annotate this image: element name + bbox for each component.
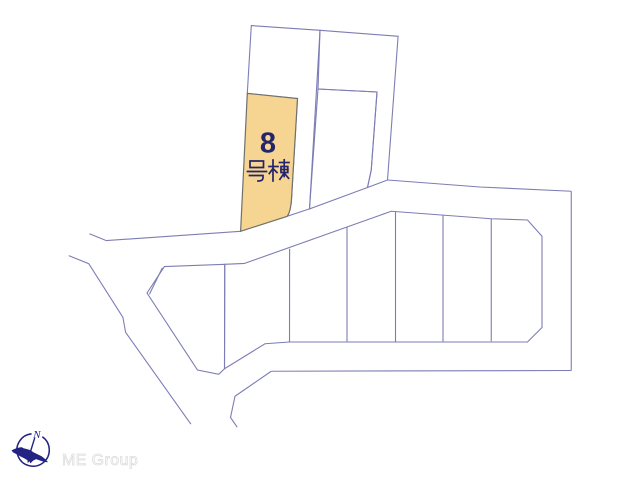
svg-text:ME Group: ME Group: [62, 452, 138, 469]
svg-text:8: 8: [260, 128, 276, 160]
svg-text:N: N: [32, 429, 41, 441]
